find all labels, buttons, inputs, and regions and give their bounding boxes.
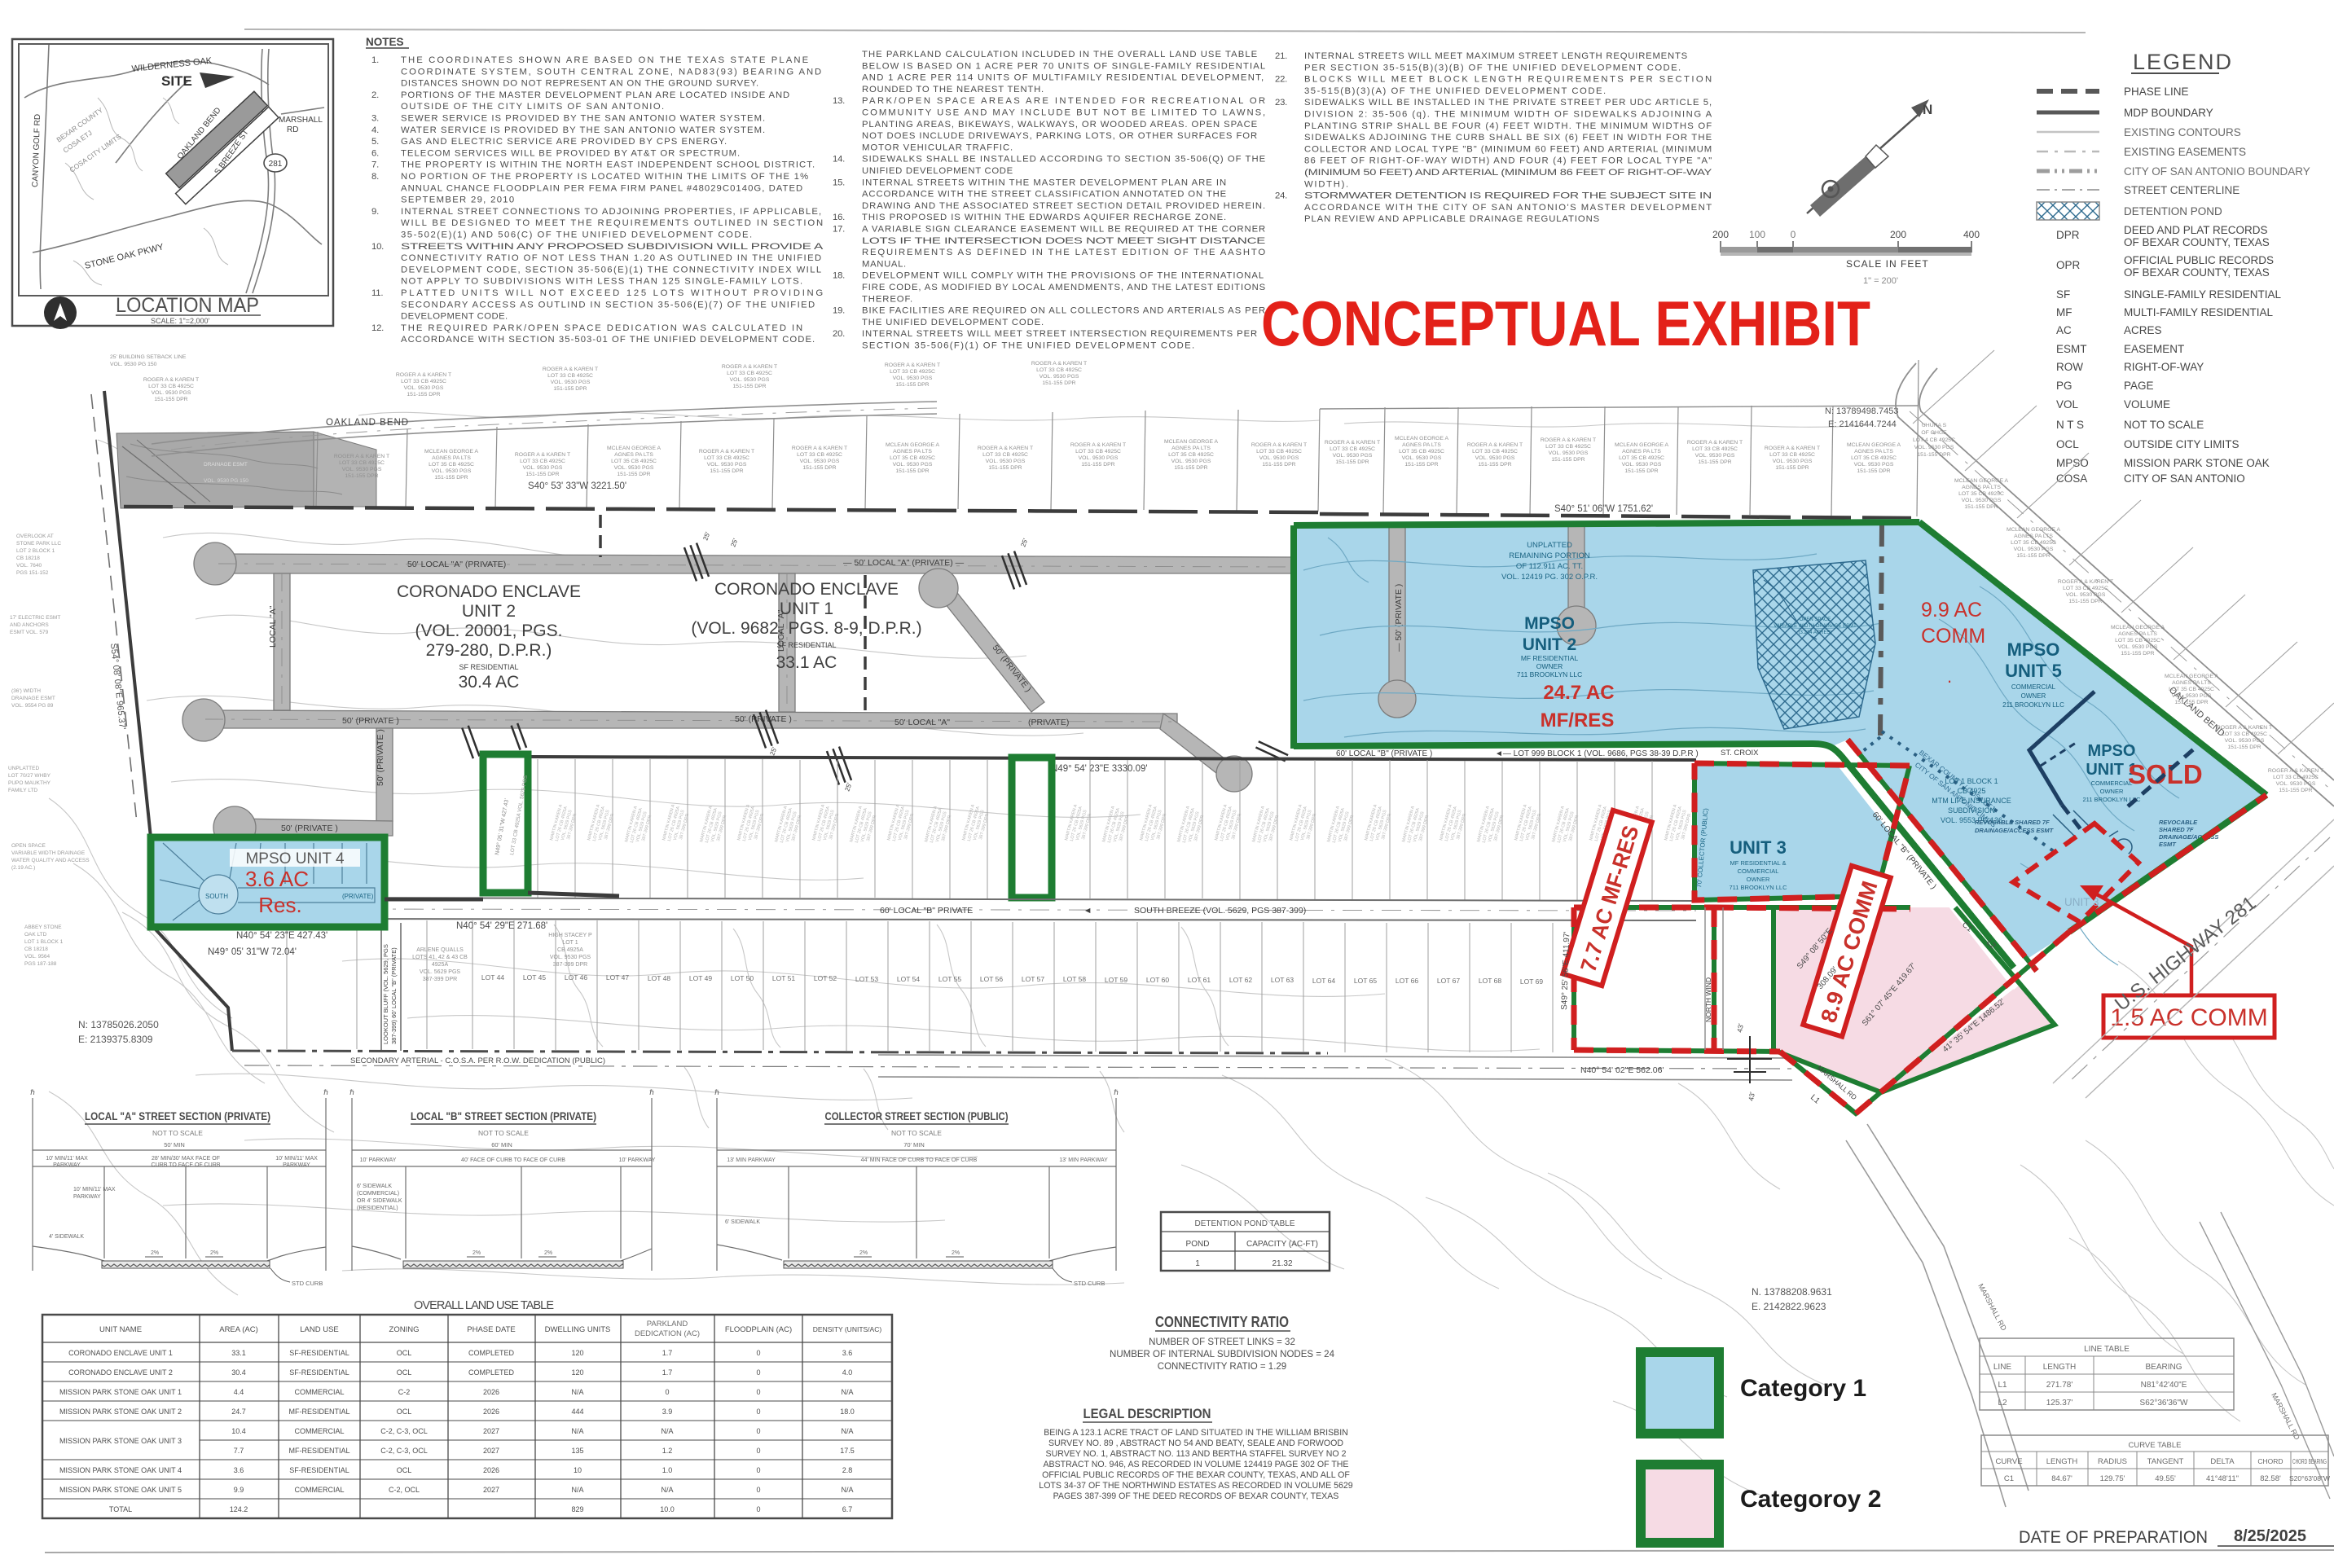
svg-text:CONNECTIVITY RATIO = 1.29: CONNECTIVITY RATIO = 1.29 [1158,1362,1286,1372]
svg-text:LOT 53: LOT 53 [855,975,878,983]
svg-text:LEGAL DESCRIPTION: LEGAL DESCRIPTION [1083,1407,1211,1421]
svg-text:21.: 21. [1275,51,1287,61]
svg-text:SF RESIDENTIAL: SF RESIDENTIAL [459,663,518,671]
svg-text:DISTANCES SHOWN DO NOT REPRESE: DISTANCES SHOWN DO NOT REPRESENT AN ON T… [401,79,758,89]
svg-text:SUBDIVISION: SUBDIVISION [1948,806,1995,815]
svg-text:24.7: 24.7 [231,1408,246,1416]
svg-text:N/A: N/A [841,1486,853,1494]
svg-text:1.2: 1.2 [662,1447,673,1455]
svg-text:2%: 2% [952,1250,960,1256]
svg-text:SF-RESIDENTIAL: SF-RESIDENTIAL [289,1368,349,1377]
svg-text:PGS 187-188: PGS 187-188 [24,961,57,967]
svg-text:DETENTION POND TABLE: DETENTION POND TABLE [1195,1219,1295,1228]
svg-text:OF 112.911 AC. TT.: OF 112.911 AC. TT. [1516,562,1583,571]
svg-text:NOT TO SCALE: NOT TO SCALE [891,1129,942,1137]
svg-text:SECONDARY ACCESS AS OUTLIND IN: SECONDARY ACCESS AS OUTLIND IN SECTION 3… [401,300,815,310]
svg-text:1: 1 [1195,1259,1200,1268]
svg-text:50' MIN: 50' MIN [164,1141,185,1149]
svg-text:LOT 59: LOT 59 [1105,976,1127,984]
svg-text:VARIABLE WIDTH DRAINAGE: VARIABLE WIDTH DRAINAGE [11,850,86,856]
svg-text:50' (PRIVATE ): 50' (PRIVATE ) [281,824,338,833]
svg-text:EASEMENT: EASEMENT [2124,343,2184,355]
svg-text:OCL: OCL [2056,438,2079,450]
svg-text:FLOODPLAIN (AC): FLOODPLAIN (AC) [725,1325,792,1334]
svg-text:OF BEXAR COUNTY, TEXAS: OF BEXAR COUNTY, TEXAS [2124,236,2270,248]
svg-text:PARKLAND: PARKLAND [647,1320,688,1329]
svg-text:LOTS 41, 42 & 43 CB: LOTS 41, 42 & 43 CB [412,955,468,960]
svg-text:N/A: N/A [571,1388,583,1396]
svg-text:0: 0 [756,1427,760,1435]
svg-text:HIGH STACEY P: HIGH STACEY P [548,933,592,938]
svg-text:0: 0 [756,1505,760,1513]
svg-text:DPR: DPR [2056,229,2080,241]
svg-text:UNIFIED DEVELOPMENT CODE: UNIFIED DEVELOPMENT CODE [862,166,1013,176]
svg-text:ACCORDANCE WITH THE STREET CLA: ACCORDANCE WITH THE STREET CLASSIFICATIO… [862,190,1227,200]
svg-text:LOT 57: LOT 57 [1022,975,1044,983]
svg-text:CB 18218: CB 18218 [16,556,40,561]
svg-text:COLLECTOR AND LOCAL TYPE "B" (: COLLECTOR AND LOCAL TYPE "B" (MINIMUM 60… [1304,144,1712,154]
svg-text:387-399 DPR: 387-399 DPR [553,962,587,968]
svg-text:ANNUAL CHANCE FLOODPLAIN PER F: ANNUAL CHANCE FLOODPLAIN PER FEMA FIRM P… [401,183,802,193]
svg-text:LOT 47: LOT 47 [606,973,629,982]
svg-text:MDP BOUNDARY: MDP BOUNDARY [2124,107,2213,119]
svg-text:4.4: 4.4 [234,1388,244,1396]
svg-text:3.6 AC: 3.6 AC [245,867,309,891]
svg-text:10' PARKWAY: 10' PARKWAY [360,1157,397,1163]
svg-text:8/25/2025: 8/25/2025 [2234,1527,2306,1545]
svg-text:33.1: 33.1 [231,1349,246,1357]
svg-text:COMMERCIAL: COMMERCIAL [2011,683,2056,691]
svg-text:ℏ: ℏ [30,1088,35,1096]
svg-text:2026: 2026 [483,1408,499,1416]
svg-text:400: 400 [1963,229,1980,240]
svg-text:MISSION PARK STONE OAK UNIT 4: MISSION PARK STONE OAK UNIT 4 [59,1466,182,1474]
svg-text:ABBEY STONE: ABBEY STONE [24,925,62,930]
svg-text:SF-RESIDENTIAL: SF-RESIDENTIAL [289,1349,349,1357]
svg-text:LOT 66: LOT 66 [1396,977,1418,985]
svg-text:OAK LTD: OAK LTD [24,932,47,938]
svg-text:(PRIVATE): (PRIVATE) [342,893,374,900]
svg-text:ARLENE QUALLS: ARLENE QUALLS [416,947,464,953]
svg-text:OPEN SPACE: OPEN SPACE [1800,617,1831,622]
svg-text:S62°36'36"W: S62°36'36"W [2140,1399,2188,1408]
svg-text:VOL. 9530 PG 150: VOL. 9530 PG 150 [204,478,248,484]
svg-text:SOLD: SOLD [2128,759,2203,789]
svg-text:60' LOCAL "B" PRIVATE: 60' LOCAL "B" PRIVATE [880,906,973,916]
svg-text:1.5 AC COMM: 1.5 AC COMM [2110,1004,2267,1031]
svg-text:OWNER: OWNER [2100,788,2124,795]
svg-text:THE UNIFIED DEVELOPMENT CODE.: THE UNIFIED DEVELOPMENT CODE. [862,318,1044,327]
svg-text:16.: 16. [833,213,845,222]
svg-text:NUMBER OF INTERNAL SUBDIVISION: NUMBER OF INTERNAL SUBDIVISION NODES = 2… [1110,1350,1335,1359]
svg-text:REVOCABLE SHARED 7F: REVOCABLE SHARED 7F [1975,819,2050,826]
svg-text:ℏ: ℏ [349,1088,354,1096]
svg-text:N49° 54' 23"E 3330.09': N49° 54' 23"E 3330.09' [1051,764,1148,774]
svg-text:STD CURB: STD CURB [1074,1280,1105,1287]
svg-text:OFFICIAL PUBLIC RECORDS OF THE: OFFICIAL PUBLIC RECORDS OF THE BEXAR COU… [1042,1470,1350,1480]
svg-text:INTERNAL STREET CONNECTIONS TO: INTERNAL STREET CONNECTIONS TO ADJOINING… [401,207,821,217]
svg-text:14.: 14. [833,155,845,165]
svg-text:INTERNAL STREETS WILL MEET STR: INTERNAL STREETS WILL MEET STREET INTERS… [862,329,1257,339]
svg-text:271.78': 271.78' [2046,1381,2073,1390]
svg-text:DEVELOPMENT WILL COMPLY WITH T: DEVELOPMENT WILL COMPLY WITH THE PROVISI… [862,271,1264,281]
svg-text:86 FEET OF RIGHT-OF-WAY WIDTH): 86 FEET OF RIGHT-OF-WAY WIDTH) AND FOUR … [1304,156,1712,166]
svg-text:MF RESIDENTIAL &: MF RESIDENTIAL & [1730,859,1787,867]
svg-text:9.: 9. [371,207,379,217]
svg-text:SURVEY NO. 1, ABSTRACT NO. 113: SURVEY NO. 1, ABSTRACT NO. 113 AND BERTH… [1046,1449,1347,1459]
svg-text:INTERNAL STREETS WITHIN THE MA: INTERNAL STREETS WITHIN THE MASTER DEVEL… [862,178,1226,187]
svg-text:444: 444 [571,1408,583,1416]
svg-text:OAKLAND BEND: OAKLAND BEND [326,418,409,428]
svg-text:LEGEND: LEGEND [2133,50,2233,74]
svg-text:— 50' (PRIVATE ): — 50' (PRIVATE ) [1394,584,1404,652]
svg-text:OUTSIDE CITY LIMITS: OUTSIDE CITY LIMITS [2124,438,2239,450]
svg-text:120: 120 [571,1368,583,1377]
svg-text:AC: AC [2056,324,2072,336]
svg-text:VOL. 12419 PG. 302 O.P.R.: VOL. 12419 PG. 302 O.P.R. [1501,573,1598,582]
svg-text:0: 0 [756,1466,760,1474]
svg-text:ℏ: ℏ [1114,1088,1119,1096]
svg-text:SIDEWALKS ADJOINING THE CURB S: SIDEWALKS ADJOINING THE CURB SHALL BE SI… [1304,133,1712,143]
svg-text:LOT 1 BLOCK 1: LOT 1 BLOCK 1 [1945,777,1998,785]
svg-text:1.7: 1.7 [662,1368,673,1377]
svg-text:COMMERCIAL: COMMERCIAL [294,1388,344,1396]
svg-text:COLLECTOR STREET SECTION (PUBL: COLLECTOR STREET SECTION (PUBLIC) [825,1109,1009,1122]
svg-text:ESMT VOL. 579: ESMT VOL. 579 [10,630,49,635]
svg-text:NOT DOES INCLUDE DRIVEWAYS, PA: NOT DOES INCLUDE DRIVEWAYS, PARKING LOTS… [862,131,1257,141]
svg-text:VARIABLE WIDTH DRAINAGE ESMT: VARIABLE WIDTH DRAINAGE ESMT [1774,624,1857,629]
svg-text:6.: 6. [371,148,379,158]
svg-text:VOL. 9530 PG 150: VOL. 9530 PG 150 [110,362,157,367]
svg-text:AND ANCHORS: AND ANCHORS [10,622,49,628]
svg-text:30.4 AC: 30.4 AC [459,673,520,692]
svg-text:LOT 2 BLOCK 1: LOT 2 BLOCK 1 [16,548,55,554]
svg-text:COMPLETED: COMPLETED [468,1368,515,1377]
svg-text:DEVELOPMENT CODE.: DEVELOPMENT CODE. [401,312,508,322]
svg-text:LOT 61: LOT 61 [1188,976,1211,984]
svg-text:2.8: 2.8 [842,1466,853,1474]
svg-text:MISSION PARK STONE OAK UNIT 5: MISSION PARK STONE OAK UNIT 5 [59,1486,182,1494]
svg-text:13' MIN PARKWAY: 13' MIN PARKWAY [1059,1157,1108,1163]
svg-text:PORTIONS OF THE MASTER DEVELOP: PORTIONS OF THE MASTER DEVELOPMENT PLAN … [401,90,789,100]
svg-text:CURVE TABLE: CURVE TABLE [2129,1441,2182,1450]
svg-text:OCL: OCL [397,1349,412,1357]
svg-text:LOT 68: LOT 68 [1479,977,1501,985]
svg-text:MTM LIFE INSURANCE: MTM LIFE INSURANCE [1932,797,2011,805]
svg-text:COMM: COMM [1921,625,1985,648]
svg-text:11.: 11. [371,288,383,298]
svg-text:PGS 151-152: PGS 151-152 [16,570,49,576]
svg-text:L1: L1 [1998,1381,2007,1390]
svg-text:E. 2142822.9623: E. 2142822.9623 [1752,1301,1826,1312]
svg-text:MANUAL.: MANUAL. [862,259,906,269]
svg-text:NUMBER OF STREET LINKS = 32: NUMBER OF STREET LINKS = 32 [1149,1337,1295,1347]
svg-text:.: . [1947,666,1952,687]
svg-text:LOT 50: LOT 50 [731,974,754,982]
svg-text:BELOW IS BASED ON 1 ACRE PER 7: BELOW IS BASED ON 1 ACRE PER 70 UNITS OF… [862,61,1265,71]
svg-text:MOTOR VEHICULAR TRAFFIC.: MOTOR VEHICULAR TRAFFIC. [862,143,1013,152]
svg-text:2027: 2027 [483,1486,499,1494]
svg-text:CONCEPTUAL EXHIBIT: CONCEPTUAL EXHIBIT [1261,288,1870,359]
svg-text:COMMERCIAL: COMMERCIAL [294,1486,344,1494]
svg-text:CHORD BEARING: CHORD BEARING [2292,1458,2327,1465]
svg-text:OF OHGE: OF OHGE [1921,430,1947,436]
svg-text:STONE PARK LLC: STONE PARK LLC [16,541,61,547]
svg-text:17' ELECTRIC ESMT: 17' ELECTRIC ESMT [10,615,60,621]
svg-text:17.5: 17.5 [840,1447,855,1455]
svg-text:C-2, OCL: C-2, OCL [389,1486,420,1494]
svg-text:SEPTEMBER 29, 2010: SEPTEMBER 29, 2010 [401,195,514,205]
svg-text:LENGTH: LENGTH [2046,1457,2078,1466]
svg-text:BEARING: BEARING [2145,1363,2182,1372]
svg-text:MF-RESIDENTIAL: MF-RESIDENTIAL [288,1447,349,1455]
svg-text:EXISTING CONTOURS: EXISTING CONTOURS [2124,126,2241,138]
svg-text:UNIT 5: UNIT 5 [2005,661,2062,681]
svg-text:GAS AND ELECTRIC SERVICE ARE P: GAS AND ELECTRIC SERVICE ARE PROVIDED BY… [401,137,727,147]
svg-text:CORONADO ENCLAVE: CORONADO ENCLAVE [397,582,581,601]
svg-text:LOT 1: LOT 1 [562,940,578,946]
svg-text:9.9: 9.9 [234,1486,244,1494]
svg-text:4' SIDEWALK: 4' SIDEWALK [49,1234,84,1240]
svg-text:279-280, D.P.R.): 279-280, D.P.R.) [426,641,552,660]
svg-text:10.0: 10.0 [660,1505,675,1513]
svg-text:◄— LOT 999 BLOCK 1 (VOL. 9686: ◄— LOT 999 BLOCK 1 (VOL. 9686, PGS 38-39… [1495,749,1699,758]
svg-text:18.: 18. [833,271,845,281]
svg-text:PLANTING STRIP SHALL BE FOUR (: PLANTING STRIP SHALL BE FOUR (4) FEET WI… [1304,121,1712,131]
svg-text:C-2: C-2 [398,1388,411,1396]
svg-text:28' MIN/30' MAX FACE OF: 28' MIN/30' MAX FACE OF [152,1156,220,1162]
svg-text:4.: 4. [371,125,379,135]
svg-text:Categoroy 2: Categoroy 2 [1740,1486,1881,1513]
svg-text:WATER QUALITY AND ACCESS: WATER QUALITY AND ACCESS [11,858,90,863]
svg-text:SEWER SERVICE IS PROVIDED BY T: SEWER SERVICE IS PROVIDED BY THE SAN ANT… [401,114,765,124]
svg-text:OVERLOOK AT: OVERLOOK AT [16,534,54,539]
svg-text:COMMERCIAL: COMMERCIAL [2091,780,2133,787]
svg-text:N/A: N/A [661,1486,673,1494]
svg-text:COMMUNITY USE AND MAY INCL: COMMUNITY USE AND MAY INCLUDE BUT NOT BE… [862,108,1265,118]
svg-text:ℏ: ℏ [714,1088,719,1096]
svg-text:OPR: OPR [2056,259,2081,271]
svg-text:25' BUILDING SETBACK LINE: 25' BUILDING SETBACK LINE [110,354,187,360]
svg-text:LOT 52: LOT 52 [814,974,837,982]
svg-text:82.58': 82.58' [2260,1474,2281,1483]
svg-text:9.9 AC: 9.9 AC [1921,599,1982,621]
svg-text:LOT 58: LOT 58 [1063,975,1086,983]
svg-text:1.0: 1.0 [662,1466,673,1474]
svg-text:35-502(E)(1) AND 506(C) OF THE: 35-502(E)(1) AND 506(C) OF THE UNIFIED D… [401,231,752,240]
svg-text:20.: 20. [833,329,845,339]
svg-text:DEDICATION (AC): DEDICATION (AC) [635,1329,700,1338]
svg-text:0: 0 [756,1349,760,1357]
svg-text:120: 120 [571,1349,583,1357]
svg-text:MISSION PARK STONE OAK: MISSION PARK STONE OAK [2124,457,2270,469]
svg-text:10' MIN/11' MAX: 10' MIN/11' MAX [73,1187,116,1192]
svg-text:BEING A 123.1 ACRE TRACT OF LA: BEING A 123.1 ACRE TRACT OF LAND SITUATE… [1044,1428,1348,1438]
svg-text:REVOCABLE: REVOCABLE [2159,819,2198,826]
svg-text:50' LOCAL "A": 50' LOCAL "A" [894,718,950,727]
svg-text:OPEN SPACE: OPEN SPACE [11,843,46,849]
svg-text:21.32: 21.32 [1272,1259,1292,1268]
svg-text:SIDEWALKS SHALL BE INSTALLED A: SIDEWALKS SHALL BE INSTALLED ACCORDING T… [862,155,1266,165]
svg-text:LAND USE: LAND USE [300,1325,339,1334]
svg-text:RADIUS: RADIUS [2098,1457,2127,1466]
svg-text:PLANTING AREAS, BIKEWAYS, WALK: PLANTING AREAS, BIKEWAYS, WALKWAYS, OR W… [862,120,1258,130]
svg-text:22.: 22. [1275,75,1287,85]
svg-text:E: 2139375.8309: E: 2139375.8309 [78,1034,153,1045]
svg-text:BIKE FACILITIES ARE REQUIRED O: BIKE FACILITIES ARE REQUIRED ON ALL COLL… [862,306,1265,316]
svg-text:PAGE: PAGE [2124,380,2154,392]
svg-text:CB 18218: CB 18218 [24,947,48,952]
svg-text:VOL: VOL [2056,398,2079,411]
svg-text:NO PORTION OF THE PROPERTY IS: NO PORTION OF THE PROPERTY IS LOCATED WI… [401,172,808,182]
svg-text:4.0: 4.0 [842,1368,853,1377]
svg-text:PG: PG [2056,380,2072,392]
svg-text:RIGHT-OF-WAY: RIGHT-OF-WAY [2124,361,2204,373]
svg-text:INTERNAL STREETS WILL MEET MAX: INTERNAL STREETS WILL MEET MAXIMUM STREE… [1304,51,1688,61]
svg-text:LOT 55: LOT 55 [938,975,961,983]
svg-text:0: 0 [665,1388,669,1396]
svg-text:LOT 62: LOT 62 [1229,976,1252,984]
svg-text:PHASE DATE: PHASE DATE [467,1325,515,1334]
svg-text:13' MIN PARKWAY: 13' MIN PARKWAY [727,1157,776,1163]
svg-text:SCALE IN FEET: SCALE IN FEET [1846,258,1929,270]
svg-text:SOUTH: SOUTH [205,893,228,900]
svg-text:THIS PROPOSED IS WITHIN THE ED: THIS PROPOSED IS WITHIN THE EDWARDS AQUI… [862,213,1226,222]
svg-text:OFFICIAL PUBLIC RECORDS: OFFICIAL PUBLIC RECORDS [2124,254,2274,266]
svg-text:DWELLING UNITS: DWELLING UNITS [545,1325,611,1334]
svg-text:LOT 65: LOT 65 [1354,977,1377,985]
svg-text:DEED AND PLAT RECORDS: DEED AND PLAT RECORDS [2124,224,2268,236]
svg-text:L2: L2 [1998,1399,2007,1408]
svg-text:NOT TO SCALE: NOT TO SCALE [152,1129,203,1137]
svg-text:43': 43' [1747,1091,1756,1101]
svg-text:CURVE: CURVE [1995,1457,2022,1466]
svg-text:N/A: N/A [571,1427,583,1435]
svg-text:WATER SERVICE IS PROVIDED BY T: WATER SERVICE IS PROVIDED BY THE SAN ANT… [401,125,765,135]
svg-text:C-2, C-3, OCL: C-2, C-3, OCL [380,1447,428,1455]
svg-text:PARKWAY: PARKWAY [283,1162,310,1168]
svg-text:6.7: 6.7 [842,1505,853,1513]
svg-text:CB 4925: CB 4925 [1957,787,1985,795]
svg-text:DRAINAGE/ACCESS ESMT: DRAINAGE/ACCESS ESMT [1975,827,2055,834]
svg-text:PARKWAY: PARKWAY [53,1162,81,1168]
svg-text:LOTS 34-37 OF THE NORTHWIND ES: LOTS 34-37 OF THE NORTHWIND ESTATES AS R… [1039,1481,1352,1491]
svg-text:ℏ: ℏ [323,1088,328,1096]
svg-text:ACCORDANCE WITH SECTION 35-503: ACCORDANCE WITH SECTION 35-503-01 OF THE… [401,335,815,345]
svg-text:(3.214 ACRES): (3.214 ACRES) [1798,630,1831,635]
svg-text:DIVISION 2: 35-506 (q). THE M: DIVISION 2: 35-506 (q). THE MINIMUM WIDT… [1304,110,1712,120]
svg-text:13.: 13. [833,96,845,106]
svg-text:LOT 54: LOT 54 [897,975,920,983]
svg-text:(RESIDENTIAL): (RESIDENTIAL) [357,1206,398,1211]
svg-text:44' MIN FACE OF CURB TO FACE O: 44' MIN FACE OF CURB TO FACE OF CURB [861,1157,978,1163]
svg-text:84.67': 84.67' [2051,1474,2072,1483]
svg-text:387-399 DPR: 387-399 DPR [423,977,457,982]
svg-text:ESMT: ESMT [2056,343,2087,355]
svg-text:MISSION PARK STONE OAK UNIT 1: MISSION PARK STONE OAK UNIT 1 [59,1388,182,1396]
svg-text:CONNECTIVITY RATIO: CONNECTIVITY RATIO [1155,1314,1289,1330]
svg-text:CORONADO ENCLAVE UNIT 1: CORONADO ENCLAVE UNIT 1 [68,1349,173,1357]
svg-text:2026: 2026 [483,1388,499,1396]
svg-text:STORMWATER DETENTION IS: STORMWATER DETENTION IS REQUIRED FOR THE… [1304,191,1712,201]
svg-text:LOCAL "A": LOCAL "A" [268,605,278,648]
svg-text:MPSO UNIT 4: MPSO UNIT 4 [245,850,344,867]
svg-text:RD: RD [287,125,298,134]
svg-text:829: 829 [571,1505,583,1513]
svg-text:N40° 54' 29"E 271.68': N40° 54' 29"E 271.68' [456,921,547,931]
svg-text:SURVEY NO. 89 , ABSTRACT NO 5: SURVEY NO. 89 , ABSTRACT NO 54 AND BEATY… [1048,1438,1343,1448]
svg-text:MPSO: MPSO [2007,639,2060,660]
svg-text:10: 10 [574,1466,582,1474]
svg-text:LOT 45: LOT 45 [523,973,546,982]
svg-text:23.: 23. [1275,98,1287,108]
svg-text:1.7: 1.7 [662,1349,673,1357]
svg-text:OWNER: OWNER [1747,876,1770,883]
svg-text:OCL: OCL [397,1408,412,1416]
svg-text:CONNECTIVITY RATIO OF NOT LESS: CONNECTIVITY RATIO OF NOT LESS THAN 1.20… [401,253,821,263]
svg-text:SECTION 35-506(F)(1) OF THE UN: SECTION 35-506(F)(1) OF THE UNIFIED DEVE… [862,341,1194,351]
svg-text:N/A: N/A [571,1486,583,1494]
svg-text:AREA (AC): AREA (AC) [219,1325,258,1334]
svg-text:MPSO: MPSO [1524,614,1575,633]
svg-text:ROW: ROW [2056,361,2083,373]
svg-text:UNIT 2: UNIT 2 [1523,635,1577,654]
svg-text:ST. CROIX: ST. CROIX [1721,749,1759,758]
svg-text:STREET CENTERLINE: STREET CENTERLINE [2124,184,2239,196]
svg-text:VOL. 9530 PGS: VOL. 9530 PGS [1914,445,1954,450]
svg-text:S40° 53' 33"W 3221.50': S40° 53' 33"W 3221.50' [528,481,626,491]
svg-text:CITY OF SAN ANTONIO: CITY OF SAN ANTONIO [2124,472,2245,485]
svg-text:(PRIVATE): (PRIVATE) [1028,718,1069,727]
svg-text:0: 0 [756,1486,760,1494]
svg-text:TOTAL: TOTAL [109,1505,132,1513]
svg-text:(VOL. 20001, PGS.: (VOL. 20001, PGS. [415,621,563,640]
svg-text:2027: 2027 [483,1447,499,1455]
svg-text:0: 0 [1791,229,1796,240]
svg-text:DEVELOPMENT CODE, SECTION 35-5: DEVELOPMENT CODE, SECTION 35-506(E)(1) T… [401,265,821,275]
svg-text:200: 200 [1890,229,1906,240]
svg-text:MARSHALL: MARSHALL [279,116,323,125]
svg-text:CORONADO ENCLAVE: CORONADO ENCLAVE [714,580,899,599]
svg-text:12.: 12. [371,323,384,333]
svg-text:125.37': 125.37' [2046,1399,2073,1408]
svg-text:19.: 19. [833,306,845,316]
svg-text:A VARIABLE SIGN CLEARANCE EASE: A VARIABLE SIGN CLEARANCE EASEMENT WILL … [862,225,1265,235]
svg-text:CHORD: CHORD [2257,1457,2283,1465]
svg-text:PARKWAY: PARKWAY [73,1194,101,1200]
svg-text:3.6: 3.6 [842,1349,853,1357]
svg-text:SF RESIDENTIAL: SF RESIDENTIAL [776,641,836,649]
svg-text:CORONADO ENCLAVE UNIT 2: CORONADO ENCLAVE UNIT 2 [68,1368,173,1377]
svg-text:LOT 63: LOT 63 [1271,976,1294,984]
svg-text:NOT TO SCALE: NOT TO SCALE [2124,419,2204,431]
svg-text:6' SIDEWALK: 6' SIDEWALK [357,1184,392,1189]
svg-text:OWNER: OWNER [2021,692,2046,700]
svg-text:ROUNDED TO THE NEAREST TENTH.: ROUNDED TO THE NEAREST TENTH. [862,85,1044,94]
svg-text:10' MIN/11' MAX: 10' MIN/11' MAX [275,1156,318,1162]
svg-text:1.: 1. [371,55,379,65]
svg-text:TELECOM SERVICES WILL BE PROVI: TELECOM SERVICES WILL BE PROVIDED BY AT&… [401,148,740,158]
svg-text:LOT 4 CB 4925C: LOT 4 CB 4925C [1913,437,1955,443]
svg-text:0: 0 [756,1408,760,1416]
svg-text:SF: SF [2056,288,2070,301]
svg-text:VOL. 5629 PGS: VOL. 5629 PGS [420,969,461,975]
svg-text:WIDTH).: WIDTH). [1304,179,1348,189]
svg-text:18.0: 18.0 [840,1408,855,1416]
svg-text:THE PARKLAND CALCULATION INCLU: THE PARKLAND CALCULATION INCLUDED IN THE… [862,50,1258,59]
svg-text:N. 13788208.9631: N. 13788208.9631 [1752,1286,1832,1298]
svg-text:THEREOF.: THEREOF. [862,294,912,304]
